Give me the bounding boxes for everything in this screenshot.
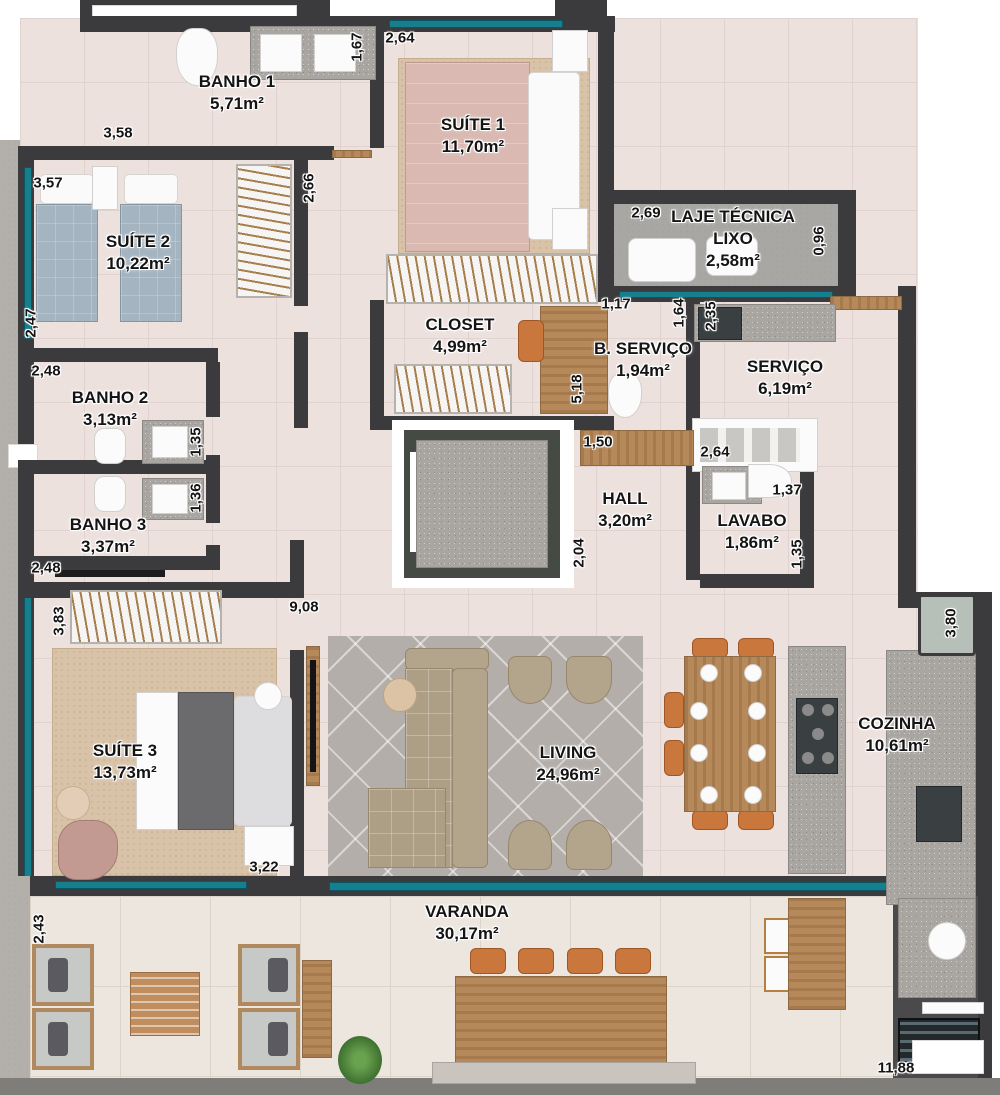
- varanda-high-table: [788, 898, 846, 1010]
- bbq-sink: [928, 922, 966, 960]
- dim-laje-depth: 0,96: [811, 226, 828, 255]
- burner-1: [802, 704, 814, 716]
- dim-suite3-wardrobe: 3,83: [51, 606, 68, 635]
- room-name: SERVIÇO: [747, 356, 823, 378]
- dim-servico-depth: 2,35: [703, 301, 720, 330]
- window-suite3-left: [25, 596, 31, 876]
- room-label-bservico: B. SERVIÇO 1,94m²: [594, 338, 692, 382]
- room-label-lavabo: LAVABO 1,86m²: [717, 510, 786, 554]
- armchair-4: [566, 820, 612, 870]
- tv-screen: [310, 660, 316, 772]
- banho2-toilet: [94, 428, 126, 464]
- room-label-banho1: BANHO 1 5,71m²: [199, 71, 276, 115]
- dim-banho2-width: 2,48: [31, 363, 60, 380]
- room-name: BANHO 1: [199, 71, 276, 93]
- sofa-backrest: [452, 668, 488, 868]
- dim-varanda-depth: 2,43: [31, 914, 48, 943]
- banho3-sink: [152, 484, 188, 514]
- wall-right-upper: [898, 286, 916, 596]
- plate-6: [748, 744, 766, 762]
- room-name: COZINHA: [858, 713, 935, 735]
- burner-4: [802, 752, 814, 764]
- dining-chair-6: [738, 810, 774, 830]
- dim-banho3-depth: 1,36: [188, 483, 205, 512]
- wall-suite2-right-upper: [294, 146, 308, 306]
- dim-banho1-depth: 1,67: [349, 32, 366, 61]
- room-label-hall: HALL 3,20m²: [598, 488, 652, 532]
- wall-banhos-right-c: [206, 545, 220, 560]
- suite2-tv: [55, 570, 165, 577]
- suite2-nightstand: [92, 166, 118, 210]
- dim-banho3-width: 2,48: [31, 560, 60, 577]
- room-area: 3,13m²: [72, 409, 149, 431]
- room-name: SUÍTE 2: [106, 231, 170, 253]
- dim-closet-depth: 5,18: [569, 374, 586, 403]
- suite1-nightstand-2: [552, 208, 588, 250]
- suite3-side-table: [56, 786, 90, 820]
- room-area: 3,20m²: [598, 510, 652, 532]
- room-name: LAVABO: [717, 510, 786, 532]
- room-area: 3,37m²: [70, 536, 147, 558]
- room-label-cozinha: COZINHA 10,61m²: [858, 713, 935, 757]
- armchair-2: [566, 656, 612, 704]
- room-area: 11,70m²: [441, 136, 505, 158]
- floor-plan: BANHO 1 5,71m² SUÍTE 1 11,70m² SUÍTE 2 1…: [0, 0, 1000, 1095]
- wall-banhos-right-a: [206, 362, 220, 417]
- varanda-bench: [432, 1062, 696, 1084]
- wall-banho2-top: [18, 348, 218, 362]
- varanda-armchair-4-pillow: [268, 1022, 288, 1056]
- dim-banho1-width: 3,58: [103, 125, 132, 142]
- elevator-door: [410, 452, 416, 552]
- dim-living-length: 9,08: [289, 599, 318, 616]
- room-label-closet: CLOSET 4,99m²: [426, 314, 495, 358]
- room-name: BANHO 2: [72, 387, 149, 409]
- banho1-sink-1: [260, 34, 302, 72]
- dim-suite3-width: 3,22: [249, 859, 278, 876]
- plate-1: [700, 664, 718, 682]
- dim-lavabo-width: 1,37: [772, 482, 801, 499]
- window-bottom-right: [912, 1040, 984, 1074]
- dim-lavabo-depth: 1,35: [789, 539, 806, 568]
- door-banho1: [332, 150, 372, 158]
- room-area: 1,86m²: [717, 532, 786, 554]
- dining-chair-5: [692, 810, 728, 830]
- varanda-chair-1: [470, 948, 506, 974]
- suite2-wardrobe: [236, 164, 292, 298]
- suite1-nightstand-1: [552, 30, 588, 72]
- dim-hall-top: 2,66: [301, 173, 318, 202]
- room-label-banho3: BANHO 3 3,37m²: [70, 514, 147, 558]
- plate-4: [690, 744, 708, 762]
- room-name-line2: LIXO: [671, 228, 795, 250]
- room-label-laje: LAJE TÉCNICA LIXO 2,58m²: [671, 206, 795, 272]
- room-name: VARANDA: [425, 901, 509, 923]
- elevator-cab: [416, 440, 548, 568]
- room-name: BANHO 3: [70, 514, 147, 536]
- room-area: 30,17m²: [425, 923, 509, 945]
- dim-laje-width: 2,69: [631, 205, 660, 222]
- lavabo-sink: [712, 472, 746, 500]
- suite2-bed2-pillow: [124, 174, 178, 204]
- dining-table: [684, 656, 776, 812]
- room-area: 6,19m²: [747, 378, 823, 400]
- suite3-armchair: [58, 820, 118, 880]
- wall-corridor-mid: [294, 332, 308, 428]
- plate-2: [744, 664, 762, 682]
- wall-suite3-right-a: [290, 540, 304, 598]
- plate-7: [700, 786, 718, 804]
- dim-suite1-width: 2,64: [385, 30, 414, 47]
- closet-wardrobe-top: [386, 254, 598, 304]
- dim-banho2-depth: 1,35: [188, 427, 205, 456]
- varanda-armchair-3-pillow: [268, 958, 288, 992]
- suite3-wardrobe: [70, 590, 222, 644]
- room-label-suite3: SUÍTE 3 13,73m²: [93, 740, 157, 784]
- dining-chair-1: [692, 638, 728, 658]
- dim-cozinha-depth: 3,80: [943, 608, 960, 637]
- room-name: SUÍTE 1: [441, 114, 505, 136]
- suite3-bed-duvet: [178, 692, 234, 830]
- room-name: LIVING: [536, 742, 599, 764]
- dim-bservico-width: 1,17: [601, 296, 630, 313]
- room-label-living: LIVING 24,96m²: [536, 742, 599, 786]
- room-name: HALL: [598, 488, 652, 510]
- dim-servico-width: 2,64: [700, 444, 729, 461]
- wall-closet-left: [370, 300, 384, 430]
- dining-chair-4: [664, 740, 684, 776]
- burner-3: [812, 728, 824, 740]
- room-area: 2,58m²: [671, 250, 795, 272]
- window-suite1-top: [390, 21, 562, 27]
- concrete-varanda-left: [0, 876, 30, 1080]
- window-laje-bottom: [620, 292, 832, 297]
- door-entry: [830, 296, 902, 310]
- wall-suite1-right: [598, 16, 614, 302]
- bbq-shelf: [922, 1002, 984, 1014]
- kitchen-sink: [916, 786, 962, 842]
- dim-varanda-width: 11,88: [878, 1060, 915, 1077]
- plate-8: [744, 786, 762, 804]
- varanda-console: [302, 960, 332, 1058]
- room-area: 4,99m²: [426, 336, 495, 358]
- dim-bservico-depth: 1,64: [671, 298, 688, 327]
- wall-laje-right: [838, 190, 856, 300]
- room-area: 1,94m²: [594, 360, 692, 382]
- wall-banhos-right-b: [206, 455, 220, 523]
- armchair-3: [508, 820, 552, 870]
- varanda-side-chair-1: [764, 918, 790, 954]
- dim-hall-width: 1,50: [583, 434, 612, 451]
- window-suite3-bottom: [56, 882, 246, 888]
- room-label-varanda: VARANDA 30,17m²: [425, 901, 509, 945]
- varanda-pallet-table: [130, 972, 200, 1036]
- sofa-chaise: [368, 788, 446, 868]
- coffee-table: [383, 678, 417, 712]
- room-label-suite2: SUÍTE 2 10,22m²: [106, 231, 170, 275]
- closet-chair: [518, 320, 544, 362]
- plate-3: [690, 702, 708, 720]
- closet-wardrobe-bottom: [394, 364, 512, 414]
- varanda-chair-4: [615, 948, 651, 974]
- room-name: B. SERVIÇO: [594, 338, 692, 360]
- varanda-armchair-2-pillow: [48, 1022, 68, 1056]
- dim-hall-depth: 2,04: [571, 538, 588, 567]
- burner-2: [822, 704, 834, 716]
- varanda-chair-3: [567, 948, 603, 974]
- suite2-bed1: [36, 204, 98, 322]
- room-area: 5,71m²: [199, 93, 276, 115]
- suite3-bed-pillows: [234, 696, 292, 826]
- wall-lavabo-bottom: [700, 574, 814, 588]
- varanda-chair-2: [518, 948, 554, 974]
- plant: [338, 1036, 382, 1084]
- room-area: 10,22m²: [106, 253, 170, 275]
- wall-suite2-top: [18, 146, 334, 160]
- room-area: 10,61m²: [858, 735, 935, 757]
- dining-chair-2: [738, 638, 774, 658]
- varanda-armchair-1-pillow: [48, 958, 68, 992]
- dim-suite2-depth: 2,47: [23, 308, 40, 337]
- plate-5: [748, 702, 766, 720]
- armchair-1: [508, 656, 552, 704]
- wall-laje-top: [612, 190, 856, 204]
- room-name: CLOSET: [426, 314, 495, 336]
- dim-suite2-width: 3,57: [33, 175, 62, 192]
- burner-5: [822, 752, 834, 764]
- room-name: LAJE TÉCNICA: [671, 206, 795, 228]
- kitchen-counter: [886, 650, 976, 905]
- banho2-sink: [152, 426, 188, 458]
- room-name: SUÍTE 3: [93, 740, 157, 762]
- dining-chair-3: [664, 692, 684, 728]
- suite3-stool: [254, 682, 282, 710]
- room-label-banho2: BANHO 2 3,13m²: [72, 387, 149, 431]
- varanda-side-chair-2: [764, 956, 790, 992]
- room-area: 13,73m²: [93, 762, 157, 784]
- room-area: 24,96m²: [536, 764, 599, 786]
- room-label-suite1: SUÍTE 1 11,70m²: [441, 114, 505, 158]
- banho3-toilet: [94, 476, 126, 512]
- sliding-door-varanda: [330, 883, 900, 890]
- room-label-servico: SERVIÇO 6,19m²: [747, 356, 823, 400]
- sofa-back: [405, 648, 489, 670]
